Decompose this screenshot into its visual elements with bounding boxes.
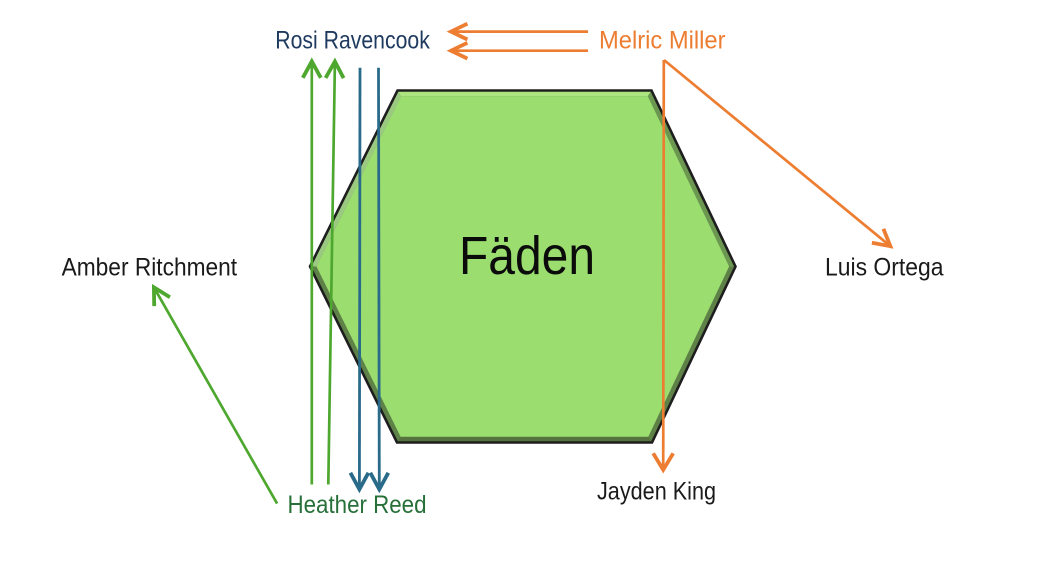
svg-text:Melric Miller: Melric Miller [599, 26, 726, 54]
svg-text:Rosi Ravencook: Rosi Ravencook [275, 26, 430, 54]
svg-text:Amber Ritchment: Amber Ritchment [62, 254, 238, 282]
svg-text:Jayden King: Jayden King [597, 478, 716, 506]
svg-text:Luis Ortega: Luis Ortega [825, 254, 944, 282]
svg-text:Heather Reed: Heather Reed [288, 491, 427, 519]
svg-text:Fäden: Fäden [459, 226, 595, 286]
